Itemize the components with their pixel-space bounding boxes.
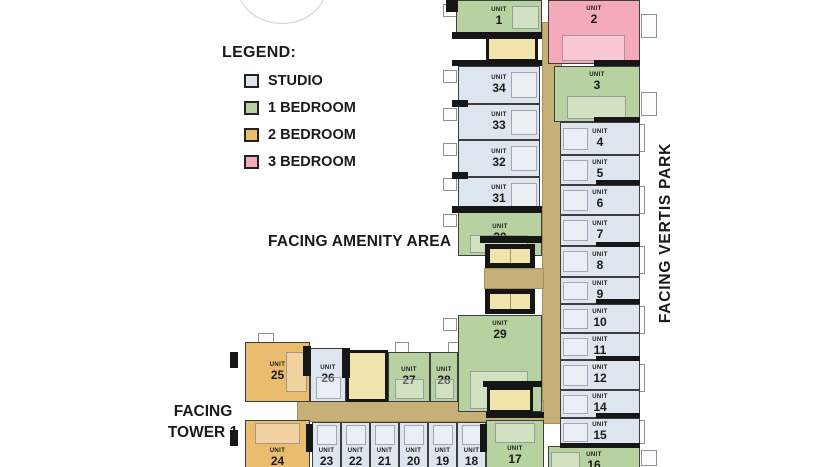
unit-34: UNIT34 (458, 66, 540, 104)
facing-tower-1-label: FACING TOWER 1 (138, 402, 268, 444)
unit-6: UNIT6 (560, 185, 640, 215)
legend-item-label: STUDIO (268, 73, 323, 89)
unit-number: 6 (597, 197, 604, 210)
balcony (641, 450, 657, 466)
unit-number: 27 (402, 374, 415, 387)
unit-number: 2 (591, 13, 598, 26)
unit-12: UNIT12 (560, 360, 640, 390)
unit-number: 21 (378, 455, 391, 467)
unit-number: 12 (593, 372, 606, 385)
wall-segment (596, 299, 640, 304)
unit-number: 25 (271, 369, 284, 382)
wall-segment (480, 424, 487, 452)
wall-segment (306, 424, 313, 452)
wall-segment (452, 100, 468, 107)
unit-25: UNIT25 (245, 342, 310, 402)
wall-segment (596, 413, 640, 418)
unit-20: UNIT20 (399, 422, 428, 467)
unit-33: UNIT33 (458, 104, 540, 140)
unit-number: 33 (492, 119, 505, 132)
unit-number: 14 (593, 401, 606, 414)
unit-10: UNIT10 (560, 304, 640, 333)
wall-segment (596, 242, 640, 247)
unit-number: 29 (493, 328, 506, 341)
unit-number: 15 (593, 429, 606, 442)
balcony (443, 108, 457, 121)
unit-number: 22 (349, 455, 362, 467)
unit-27: UNIT27 (388, 352, 430, 402)
balcony (641, 92, 657, 116)
unit-number: 1 (496, 14, 503, 27)
wall-segment (594, 60, 640, 66)
wall-segment (452, 206, 542, 213)
stairwell (487, 387, 533, 413)
wall-segment (303, 346, 311, 376)
unit-number: 24 (271, 455, 284, 467)
one-bedroom-swatch (244, 101, 259, 115)
legend: LEGEND: STUDIO 1 BEDROOM 2 BEDROOM 3 BED… (222, 44, 356, 170)
balcony (443, 70, 457, 83)
unit-number: 31 (492, 192, 505, 205)
corridor (484, 268, 544, 289)
unit-8: UNIT8 (560, 246, 640, 277)
legend-item-1-bedroom: 1 BEDROOM (244, 100, 356, 116)
elevator-core (485, 289, 535, 314)
unit-4: UNIT4 (560, 122, 640, 155)
wall-segment (452, 172, 468, 179)
unit-number: 8 (597, 259, 604, 272)
unit-2: UNIT2 (548, 0, 640, 64)
unit-number: 18 (465, 455, 478, 467)
facing-vertis-park-label: FACING VERTIS PARK (657, 128, 675, 338)
unit-number: 17 (508, 453, 521, 466)
unit-28: UNIT28 (430, 352, 458, 402)
unit-1: UNIT1 (456, 0, 542, 34)
legend-item-2-bedroom: 2 BEDROOM (244, 127, 356, 143)
legend-item-label: 2 BEDROOM (268, 127, 356, 143)
unit-number: 7 (597, 228, 604, 241)
unit-number: 34 (492, 82, 505, 95)
unit-number: 19 (436, 455, 449, 467)
unit-number: 3 (594, 79, 601, 92)
balcony (641, 14, 657, 38)
unit-17: UNIT17 (486, 420, 544, 467)
stairwell (486, 36, 538, 62)
unit-19: UNIT19 (428, 422, 457, 467)
unit-3: UNIT3 (554, 66, 640, 122)
legend-item-label: 3 BEDROOM (268, 154, 356, 170)
unit-22: UNIT22 (341, 422, 370, 467)
studio-swatch (244, 74, 259, 88)
facing-amenity-area-label: FACING AMENITY AREA (268, 233, 451, 251)
wall-segment (342, 348, 350, 378)
wall-segment (560, 443, 640, 448)
unit-26: UNIT26 (310, 348, 346, 402)
wall-segment (486, 412, 544, 418)
wall-segment (480, 236, 542, 243)
wall-segment (594, 117, 640, 122)
unit-23: UNIT23 (312, 422, 341, 467)
legend-item-label: 1 BEDROOM (268, 100, 356, 116)
balcony (443, 214, 457, 227)
balcony (443, 318, 457, 331)
wall-segment (452, 32, 542, 39)
legend-title: LEGEND: (222, 44, 356, 62)
wall-segment (230, 352, 238, 368)
legend-item-studio: STUDIO (244, 73, 356, 89)
unit-number: 23 (320, 455, 333, 467)
unit-number: 10 (593, 316, 606, 329)
legend-item-3-bedroom: 3 BEDROOM (244, 154, 356, 170)
unit-21: UNIT21 (370, 422, 399, 467)
stairwell (346, 350, 388, 402)
wall-segment (596, 180, 640, 185)
unit-number: 20 (407, 455, 420, 467)
unit-number: 5 (597, 167, 604, 180)
unit-number: 26 (321, 372, 334, 385)
unit-number: 32 (492, 156, 505, 169)
unit-32: UNIT32 (458, 140, 540, 177)
wall-segment (452, 60, 542, 66)
unit-16: UNIT16 (548, 446, 640, 467)
three-bedroom-swatch (244, 155, 259, 169)
unit-number: 28 (437, 374, 450, 387)
elevator-core (485, 244, 535, 268)
unit-15: UNIT15 (560, 418, 640, 446)
wall-segment (596, 356, 640, 361)
unit-number: 4 (597, 136, 604, 149)
floor-plan-page: LEGEND: STUDIO 1 BEDROOM 2 BEDROOM 3 BED… (0, 0, 835, 467)
wall-segment (483, 381, 542, 387)
balcony (443, 143, 457, 156)
wall-segment (446, 0, 458, 12)
balcony (443, 178, 457, 191)
two-bedroom-swatch (244, 128, 259, 142)
unit-number: 16 (587, 459, 600, 467)
unit-number: 11 (594, 344, 607, 357)
